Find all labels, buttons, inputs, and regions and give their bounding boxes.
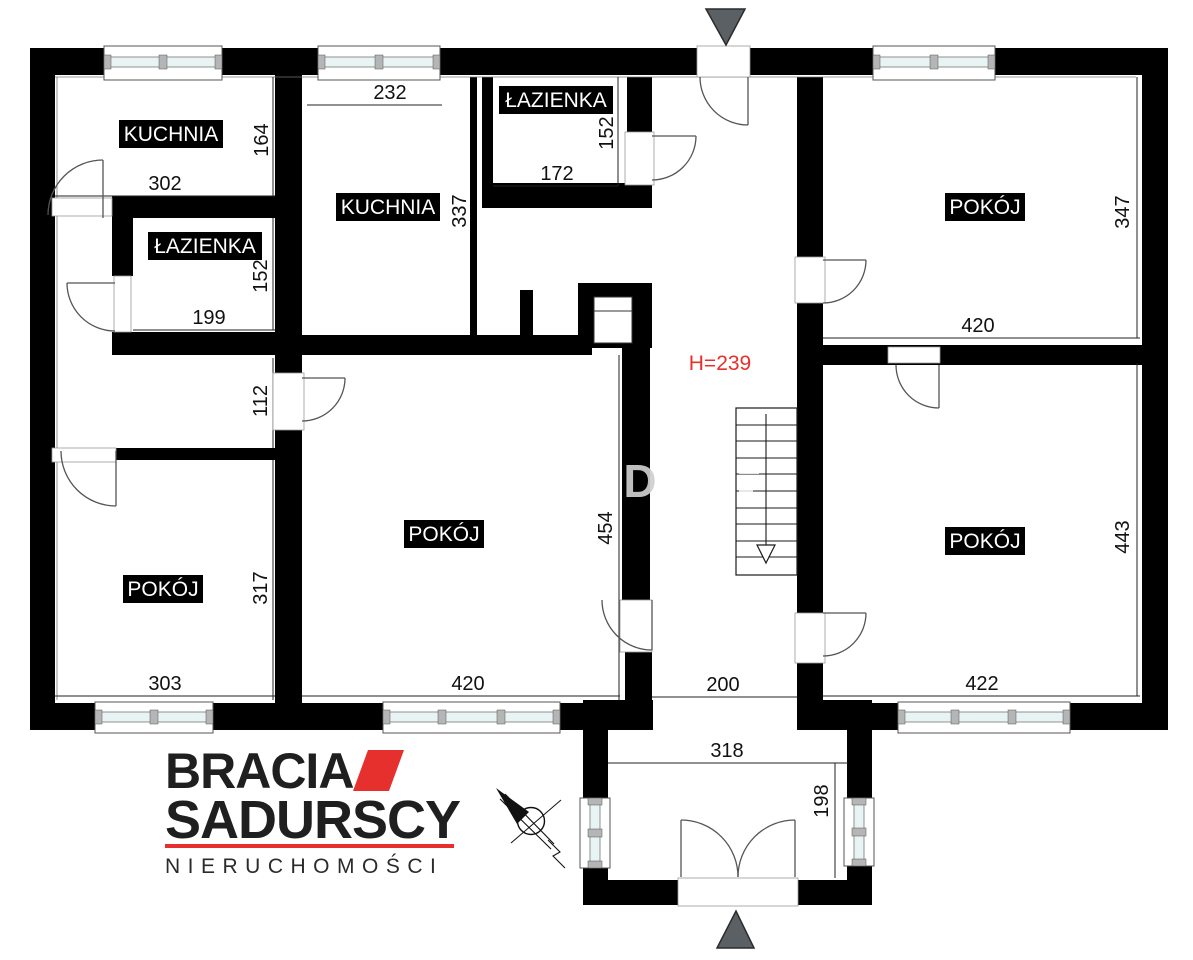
window-kitchen-middle	[318, 46, 440, 80]
door-entry-top	[700, 77, 748, 125]
wall-below-kitchen-topleft	[112, 196, 302, 218]
dim-303: 303	[148, 673, 181, 695]
dim-302: 302	[148, 173, 181, 195]
room-label-pokoj-bottom-left: POKÓJ	[123, 575, 203, 603]
opening-corridor-room-middle	[273, 373, 304, 430]
entrance-arrow-bottom	[717, 911, 754, 948]
room-label-kuchnia-top-left: KUCHNIA	[119, 120, 223, 148]
door-corridor-room-middle	[302, 378, 345, 421]
dim-172: 172	[540, 163, 573, 185]
room-label-lazienka-left: ŁAZIENKA	[148, 232, 262, 260]
dim-152-top: 152	[596, 116, 618, 149]
window-room-middle	[383, 702, 560, 733]
floor-plan-page: KUCHNIA ŁAZIENKA KUCHNIA ŁAZIENKA POKÓJ …	[0, 0, 1193, 960]
room-label-text: POKÓJ	[949, 196, 1020, 219]
window-room-bottom-right	[898, 702, 1070, 733]
north-arrow-icon	[496, 788, 565, 868]
room-label-text: POKÓJ	[127, 578, 198, 601]
wall-strip-vertical	[112, 196, 133, 276]
wall-outer-right	[1142, 48, 1168, 730]
window-porch-right	[844, 798, 874, 866]
window-room-top-right	[873, 46, 995, 80]
dim-454: 454	[595, 511, 617, 544]
room-label-lazienka-top: ŁAZIENKA	[499, 86, 613, 114]
stairs	[736, 408, 797, 575]
dim-232: 232	[373, 82, 406, 104]
wall-stub	[520, 290, 533, 337]
dim-112: 112	[250, 385, 272, 417]
dim-199: 199	[192, 307, 225, 329]
dim-422: 422	[965, 673, 998, 695]
opening-room-top-right	[795, 257, 825, 303]
interior-face-lines	[55, 77, 1136, 700]
entrance-arrow-top	[706, 9, 745, 45]
room-label-pokoj-middle: POKÓJ	[404, 520, 484, 548]
wall-bath-top-bottom	[482, 183, 652, 208]
dim-337: 337	[449, 194, 471, 227]
dim-200: 200	[706, 674, 739, 696]
wall-corridor-bottom	[116, 448, 275, 460]
window-porch-left	[580, 798, 610, 868]
room-label-kuchnia-middle: KUCHNIA	[336, 193, 440, 221]
opening-entry-top	[697, 46, 750, 77]
window-kitchen-topleft	[104, 46, 222, 80]
opening-between-right-rooms	[888, 347, 940, 363]
dim-347: 347	[1112, 195, 1134, 228]
logo-line2-text: SADURSCY	[165, 790, 461, 850]
dim-198: 198	[811, 784, 833, 817]
agency-logo: BRACIA SADURSCY NIERUCHOMOŚCI	[165, 743, 461, 878]
wall-kitchen-mid-right-thin	[470, 77, 477, 345]
door-porch-double	[681, 820, 795, 877]
room-label-text: KUCHNIA	[341, 196, 436, 219]
dim-420-middle: 420	[451, 673, 484, 695]
watermark-letter: D	[623, 455, 656, 507]
door-hall-room-bottom-right	[823, 613, 866, 656]
opening-bath-left	[114, 276, 131, 332]
dim-317: 317	[250, 571, 272, 604]
window-room-bottom-left	[95, 702, 213, 733]
room-label-text: KUCHNIA	[124, 123, 219, 146]
wall-bath-left-bottom	[112, 332, 302, 355]
wall-right-horizontal	[797, 345, 1168, 365]
logo-red-parallelogram	[353, 750, 404, 791]
opening-porch-double-door	[678, 878, 798, 906]
dim-152-left: 152	[250, 259, 272, 292]
room-label-text: ŁAZIENKA	[154, 235, 256, 258]
room-label-pokoj-top-right: POKÓJ	[945, 193, 1025, 221]
door-bath-left	[67, 283, 115, 331]
opening-hall-room-bottom-right	[795, 613, 825, 663]
wall-bath-top-left	[482, 77, 493, 183]
logo-tagline-text: NIERUCHOMOŚCI	[165, 854, 443, 878]
room-label-text: ŁAZIENKA	[505, 89, 607, 112]
dim-443: 443	[1112, 520, 1134, 553]
ceiling-height-note: H=239	[689, 352, 751, 375]
dim-164: 164	[251, 123, 273, 156]
wall-hall-left-upper	[627, 77, 652, 132]
door-room-top-right	[823, 260, 866, 303]
dim-420-top-right: 420	[961, 315, 994, 337]
wall-hall-left-lower	[625, 652, 652, 703]
opening-hall-room-middle	[620, 600, 652, 652]
room-label-pokoj-bottom-right: POKÓJ	[945, 527, 1025, 555]
logo-red-underline	[165, 844, 454, 848]
wall-outer-left	[30, 48, 55, 730]
door-between-right-rooms	[896, 365, 939, 408]
opening-bath-top	[625, 132, 654, 185]
floor-plan-drawing: KUCHNIA ŁAZIENKA KUCHNIA ŁAZIENKA POKÓJ …	[0, 0, 1193, 960]
room-label-text: POKÓJ	[408, 523, 479, 546]
wall-kitchen-mid-bottom	[302, 335, 592, 355]
door-bath-top	[652, 136, 696, 180]
chimney-vent	[594, 297, 632, 343]
room-label-text: POKÓJ	[949, 530, 1020, 553]
dim-318: 318	[710, 740, 743, 762]
